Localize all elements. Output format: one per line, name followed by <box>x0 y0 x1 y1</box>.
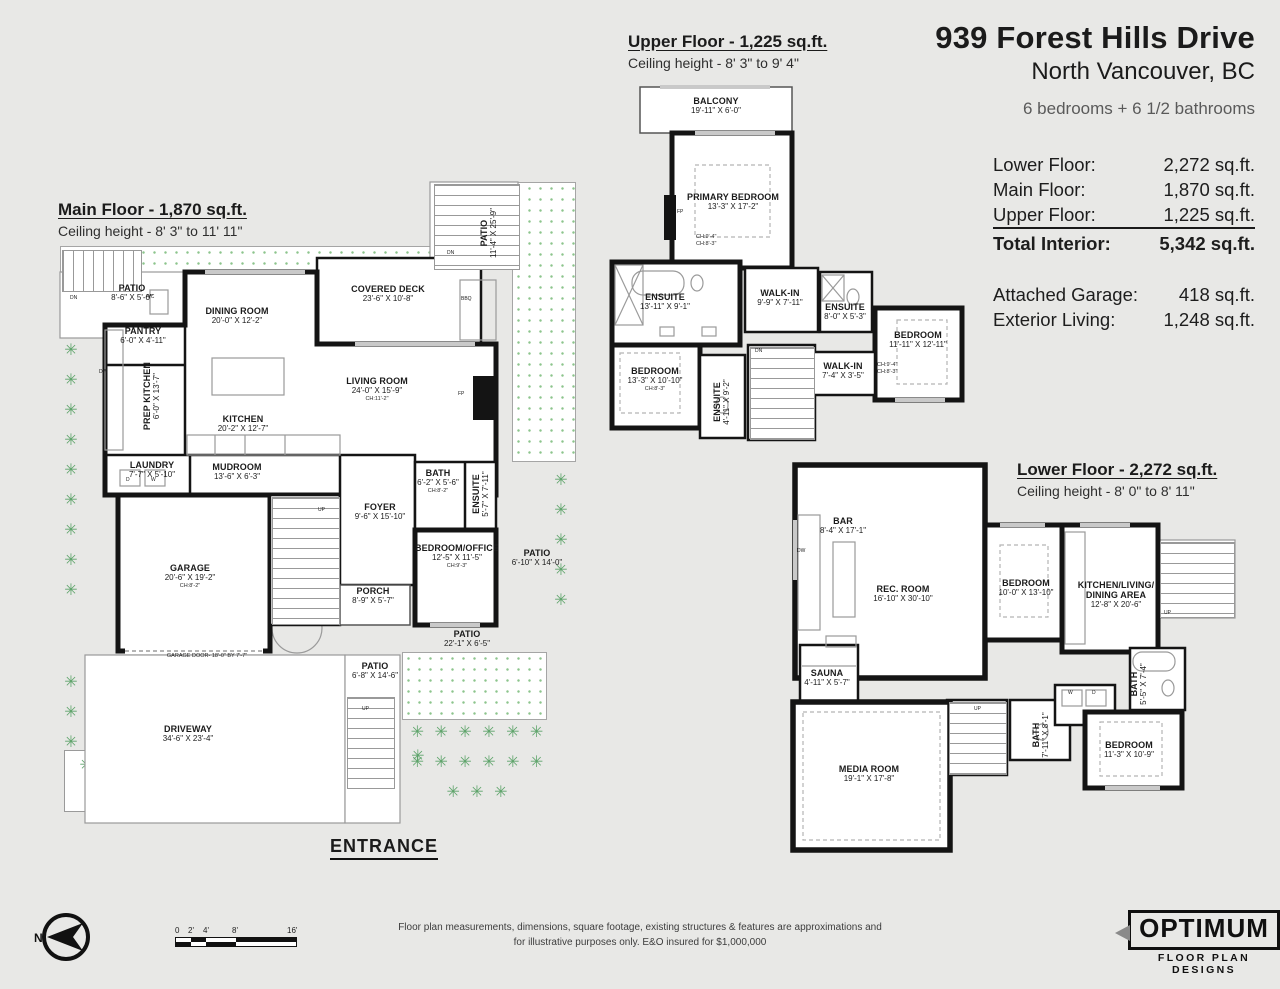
room-name: PATIO <box>325 661 425 671</box>
room-name: PATIO <box>492 548 582 558</box>
lower-floor-heading: Lower Floor - 2,272 sq.ft. Ceiling heigh… <box>1017 460 1217 499</box>
room-dims: 19'-1" X 17'-8" <box>809 774 929 784</box>
room-dims: 13'-6" X 6'-3" <box>187 472 287 482</box>
room-dims: 22'-1" X 6'-5" <box>412 639 522 649</box>
room-dims: 7'-4" X 3'-5" <box>798 371 888 381</box>
room-name: BEDROOM <box>1074 740 1184 750</box>
table-row-total: Total Interior: 5,342 sq.ft. <box>993 231 1255 256</box>
room-dims: 23'-6" X 10'-8" <box>323 294 453 304</box>
room-label-ensuite: ENSUITE 5'-7" X 7'-11" <box>471 449 491 539</box>
scale-bar-ticks: 0 2' 4' 8' 16' <box>175 926 305 937</box>
room-name: ENSUITE <box>471 449 481 539</box>
room-name: MEDIA ROOM <box>809 764 929 774</box>
table-row: Main Floor: 1,870 sq.ft. <box>993 177 1255 202</box>
fixture-label-dw: DW <box>797 548 805 554</box>
room-label-garage: GARAGE 20'-6" X 19'-2" CH:8'-2" <box>135 563 245 590</box>
room-label-ensuite-3: ENSUITE 4'-11" X 9'-2" <box>712 357 732 447</box>
tick-label: 8' <box>232 926 238 935</box>
room-label-prep-kitchen: PREP KITCHEN 6'-0" X 13'-7" <box>142 341 162 451</box>
room-dims: 6'-2" X 5'-6" <box>403 478 473 488</box>
room-name: ENSUITE <box>712 357 722 447</box>
room-ceiling: CH:9'-4" <box>668 234 798 241</box>
row-label: Exterior Living: <box>993 307 1115 332</box>
room-label-primary-bedroom: PRIMARY BEDROOM 13'-3" X 17'-2" CH:9'-4"… <box>668 192 798 248</box>
logo: OPTIMUM FLOOR PLAN DESIGNS <box>1128 910 1280 976</box>
room-dims: 11'-4" X 25'-9" <box>489 178 499 288</box>
room-name: WALK-IN <box>798 361 888 371</box>
room-dims: 9'-6" X 15'-10" <box>335 512 425 522</box>
tick-label: 4' <box>203 926 209 935</box>
fireplace <box>473 376 497 420</box>
room-label-kitchen-living: KITCHEN/LIVING/ DINING AREA 12'-8" X 20'… <box>1061 580 1171 610</box>
room-dims: 11'-3" X 10'-9" <box>1074 750 1184 760</box>
room-name: MUDROOM <box>187 462 287 472</box>
room-name: PATIO <box>412 629 522 639</box>
page-subtitle: North Vancouver, BC <box>860 58 1255 86</box>
room-label-ensuite-2: ENSUITE 8'-0" X 5'-3" <box>805 302 885 322</box>
page-title: 939 Forest Hills Drive <box>860 20 1255 56</box>
room-dims: 24'-0" X 15'-9" <box>317 386 437 396</box>
scale-bar: 0 2' 4' 8' 16' <box>175 926 305 947</box>
room-dims: 13'-3" X 10'-10" <box>600 376 710 386</box>
room-label-media-room: MEDIA ROOM 19'-1" X 17'-8" <box>809 764 929 784</box>
room-name: LAUNDRY <box>107 460 197 470</box>
stairs-side-patio <box>434 184 520 270</box>
room-dims: 11'-11" X 12'-11" <box>863 340 973 350</box>
room-name: SAUNA <box>787 668 867 678</box>
scale-bar-graphic <box>175 937 297 947</box>
room-label-patio: PATIO 8'-6" X 5'-0" <box>87 283 177 303</box>
room-dims: 6'-10" X 14'-0" <box>492 558 582 568</box>
upper-floor-ceiling: Ceiling height - 8' 3" to 9' 4" <box>628 55 827 71</box>
room-label-patio-side: PATIO 11'-4" X 25'-9" <box>479 178 499 288</box>
fixture-label-up: UP <box>362 706 369 712</box>
room-dims: 12'-8" X 20'-6" <box>1061 600 1171 610</box>
room-name: BEDROOM <box>863 330 973 340</box>
disclaimer-line-1: Floor plan measurements, dimensions, squ… <box>390 920 890 935</box>
room-name: DRIVEWAY <box>128 724 248 734</box>
room-label-balcony: BALCONY 19'-11" X 6'-0" <box>661 96 771 116</box>
table-row: Exterior Living: 1,248 sq.ft. <box>993 307 1255 332</box>
row-value: 1,225 sq.ft. <box>1163 202 1255 227</box>
room-label-mudroom: MUDROOM 13'-6" X 6'-3" <box>187 462 287 482</box>
room-label-walkin-2: WALK-IN 7'-4" X 3'-5" <box>798 361 888 381</box>
room-label-bedroom-3: BEDROOM 13'-3" X 10'-10" CH:8'-3" <box>600 366 710 393</box>
room-label-rec-room: REC. ROOM 16'-10" X 30'-10" <box>838 584 968 604</box>
fixture-label-ac: A/C <box>146 294 154 300</box>
room-name: PRIMARY BEDROOM <box>668 192 798 202</box>
room-dims: 6'-8" X 14'-6" <box>325 671 425 681</box>
room-dims: 8'-6" X 5'-0" <box>87 293 177 303</box>
room-name: BEDROOM <box>600 366 710 376</box>
room-label-foyer: FOYER 9'-6" X 15'-10" <box>335 502 425 522</box>
room-ceiling: CH:8'-3" <box>600 386 710 393</box>
room-label-porch: PORCH 8'-9" X 5'-7" <box>328 586 418 606</box>
row-value: 1,870 sq.ft. <box>1163 177 1255 202</box>
room-name: FOYER <box>335 502 425 512</box>
stairs-entrance <box>347 697 395 789</box>
disclaimer: Floor plan measurements, dimensions, squ… <box>390 920 890 950</box>
main-floor-title: Main Floor - 1,870 sq.ft. <box>58 200 247 220</box>
upper-floor-heading: Upper Floor - 1,225 sq.ft. Ceiling heigh… <box>628 32 827 71</box>
table-row: Upper Floor: 1,225 sq.ft. <box>993 202 1255 229</box>
room-label-dining: DINING ROOM 20'-0" X 12'-2" <box>182 306 292 326</box>
room-label-bath-lower-2: BATH 5'-5" X 7'-4" <box>1129 644 1149 724</box>
room-label-bar: BAR 8'-4" X 17'-1" <box>798 516 888 536</box>
fixture-label-dw: DW <box>99 369 107 375</box>
room-name: ENSUITE <box>805 302 885 312</box>
row-label: Total Interior: <box>993 231 1111 256</box>
room-name: PREP KITCHEN <box>142 341 152 451</box>
row-value: 5,342 sq.ft. <box>1159 231 1255 256</box>
room-dims: 4'-11" X 5'-7" <box>787 678 867 688</box>
room-name: PANTRY <box>103 326 183 336</box>
room-label-ensuite-primary: ENSUITE 13'-11" X 9'-1" <box>615 292 715 312</box>
room-dims: 13'-3" X 17'-2" <box>668 202 798 212</box>
pencil-icon <box>1115 925 1130 941</box>
room-name: PATIO <box>87 283 177 293</box>
tick-label: 2' <box>188 926 194 935</box>
room-name: WALK-IN <box>735 288 825 298</box>
fixture-label-bbq: BBQ <box>461 296 472 302</box>
table-row: Lower Floor: 2,272 sq.ft. <box>993 152 1255 177</box>
room-name: COVERED DECK <box>323 284 453 294</box>
fixture-label-dryer: D <box>126 477 130 483</box>
fixture-label-up: UP <box>1164 610 1171 616</box>
fixture-label-washer: W <box>1068 690 1073 696</box>
room-dims: 8'-9" X 5'-7" <box>328 596 418 606</box>
room-dims: 20'-6" X 19'-2" <box>135 573 245 583</box>
main-floor-heading: Main Floor - 1,870 sq.ft. Ceiling height… <box>58 200 247 239</box>
room-name: BATH <box>1129 644 1139 724</box>
row-value: 418 sq.ft. <box>1179 282 1255 307</box>
fixture-label-fp: FP <box>458 391 464 397</box>
main-floor-ceiling: Ceiling height - 8' 3" to 11' 11" <box>58 223 247 239</box>
fixture-label-washer: W <box>151 477 156 483</box>
room-name: BATH <box>1031 695 1041 775</box>
room-dims: 6'-0" X 13'-7" <box>152 341 162 451</box>
row-label: Attached Garage: <box>993 282 1138 307</box>
room-dims: 20'-2" X 12'-7" <box>188 424 298 434</box>
room-name: BALCONY <box>661 96 771 106</box>
room-label-patio-rear: PATIO 22'-1" X 6'-5" <box>412 629 522 649</box>
compass-n-label: N <box>34 931 43 945</box>
north-arrow: N <box>34 908 96 970</box>
fixture-label-dn: DN <box>447 250 454 256</box>
room-name: KITCHEN <box>188 414 298 424</box>
fixture-label-up: UP <box>974 706 981 712</box>
room-name: BAR <box>798 516 888 526</box>
lower-floor-ceiling: Ceiling height - 8' 0" to 8' 11" <box>1017 483 1217 499</box>
row-value: 1,248 sq.ft. <box>1163 307 1255 332</box>
disclaimer-line-2: for illustrative purposes only. E&O insu… <box>390 935 890 950</box>
fixture-label-fp: FP <box>677 209 683 215</box>
room-name: PORCH <box>328 586 418 596</box>
room-label-kitchen: KITCHEN 20'-2" X 12'-7" <box>188 414 298 434</box>
room-label-bedroom-5: BEDROOM 11'-3" X 10'-9" <box>1074 740 1184 760</box>
garage-door-note: GARAGE DOOR- 18'-0" BY 7'-7" <box>122 653 292 659</box>
room-name: LIVING ROOM <box>317 376 437 386</box>
tick-label: 0 <box>175 926 179 935</box>
room-dims: 5'-5" X 7'-4" <box>1139 644 1149 724</box>
entrance-label: ENTRANCE <box>330 836 438 860</box>
fixture-label-dryer: D <box>1092 690 1096 696</box>
fixture-label-up: UP <box>318 507 325 513</box>
room-name: KITCHEN/LIVING/ DINING AREA <box>1061 580 1171 600</box>
room-label-driveway: DRIVEWAY 34'-6" X 23'-4" <box>128 724 248 744</box>
logo-name: OPTIMUM <box>1139 913 1269 943</box>
floor-plan-page: ✳ ✳ ✳ ✳ ✳ ✳ ✳ ✳ ✳ ✳ ✳ ✳ ✳ ✳ ✳ ✳ ✳ ✳ ✳ ✳ … <box>0 0 1280 989</box>
fixture-label-dn: DN <box>755 348 762 354</box>
row-value: 2,272 sq.ft. <box>1163 152 1255 177</box>
room-name: DINING ROOM <box>182 306 292 316</box>
room-label-patio-walk: PATIO 6'-8" X 14'-6" <box>325 661 425 681</box>
room-dims: 34'-6" X 23'-4" <box>128 734 248 744</box>
compass-arrow-icon <box>47 923 83 951</box>
room-name: REC. ROOM <box>838 584 968 594</box>
row-label: Main Floor: <box>993 177 1086 202</box>
area-table: Lower Floor: 2,272 sq.ft. Main Floor: 1,… <box>993 152 1255 332</box>
room-dims: 8'-0" X 5'-3" <box>805 312 885 322</box>
title-block: 939 Forest Hills Drive North Vancouver, … <box>860 20 1255 119</box>
stairs-lower-mid <box>949 702 1007 775</box>
room-label-bath-lower: BATH 7'-11" X 8'-1" <box>1031 695 1051 775</box>
room-dims: 19'-11" X 6'-0" <box>661 106 771 116</box>
room-dims: 16'-10" X 30'-10" <box>838 594 968 604</box>
logo-box: OPTIMUM <box>1128 910 1280 950</box>
stairs-lower-up <box>1160 542 1235 618</box>
room-name: PATIO <box>479 178 489 288</box>
row-label: Upper Floor: <box>993 202 1096 227</box>
room-dims: 7'-11" X 8'-1" <box>1041 695 1051 775</box>
room-ceiling: CH:11'-2" <box>317 396 437 403</box>
row-label: Lower Floor: <box>993 152 1096 177</box>
room-ceiling: CH:8'-2" <box>403 488 473 495</box>
room-label-living: LIVING ROOM 24'-0" X 15'-9" CH:11'-2" <box>317 376 437 403</box>
room-dims: 20'-0" X 12'-2" <box>182 316 292 326</box>
fixture-label-dn: DN <box>70 295 77 301</box>
room-ceiling: CH:8'-3" <box>668 241 798 248</box>
room-label-patio-east: PATIO 6'-10" X 14'-0" <box>492 548 582 568</box>
room-name: ENSUITE <box>615 292 715 302</box>
tick-label: 16' <box>287 926 297 935</box>
room-label-sauna: SAUNA 4'-11" X 5'-7" <box>787 668 867 688</box>
room-dims: 4'-11" X 9'-2" <box>722 357 732 447</box>
room-label-covered-deck: COVERED DECK 23'-6" X 10'-8" <box>323 284 453 304</box>
bed-bath-summary: 6 bedrooms + 6 1/2 bathrooms <box>860 99 1255 119</box>
room-name: BATH <box>403 468 473 478</box>
room-name: GARAGE <box>135 563 245 573</box>
upper-floor-title: Upper Floor - 1,225 sq.ft. <box>628 32 827 52</box>
logo-tagline: FLOOR PLAN DESIGNS <box>1128 952 1280 976</box>
lower-floor-title: Lower Floor - 2,272 sq.ft. <box>1017 460 1217 480</box>
room-label-bath: BATH 6'-2" X 5'-6" CH:8'-2" <box>403 468 473 495</box>
room-dims: 8'-4" X 17'-1" <box>798 526 888 536</box>
room-dims: 13'-11" X 9'-1" <box>615 302 715 312</box>
room-dims: 5'-7" X 7'-11" <box>481 449 491 539</box>
room-ceiling: CH:8'-2" <box>135 583 245 590</box>
table-row: Attached Garage: 418 sq.ft. <box>993 282 1255 307</box>
